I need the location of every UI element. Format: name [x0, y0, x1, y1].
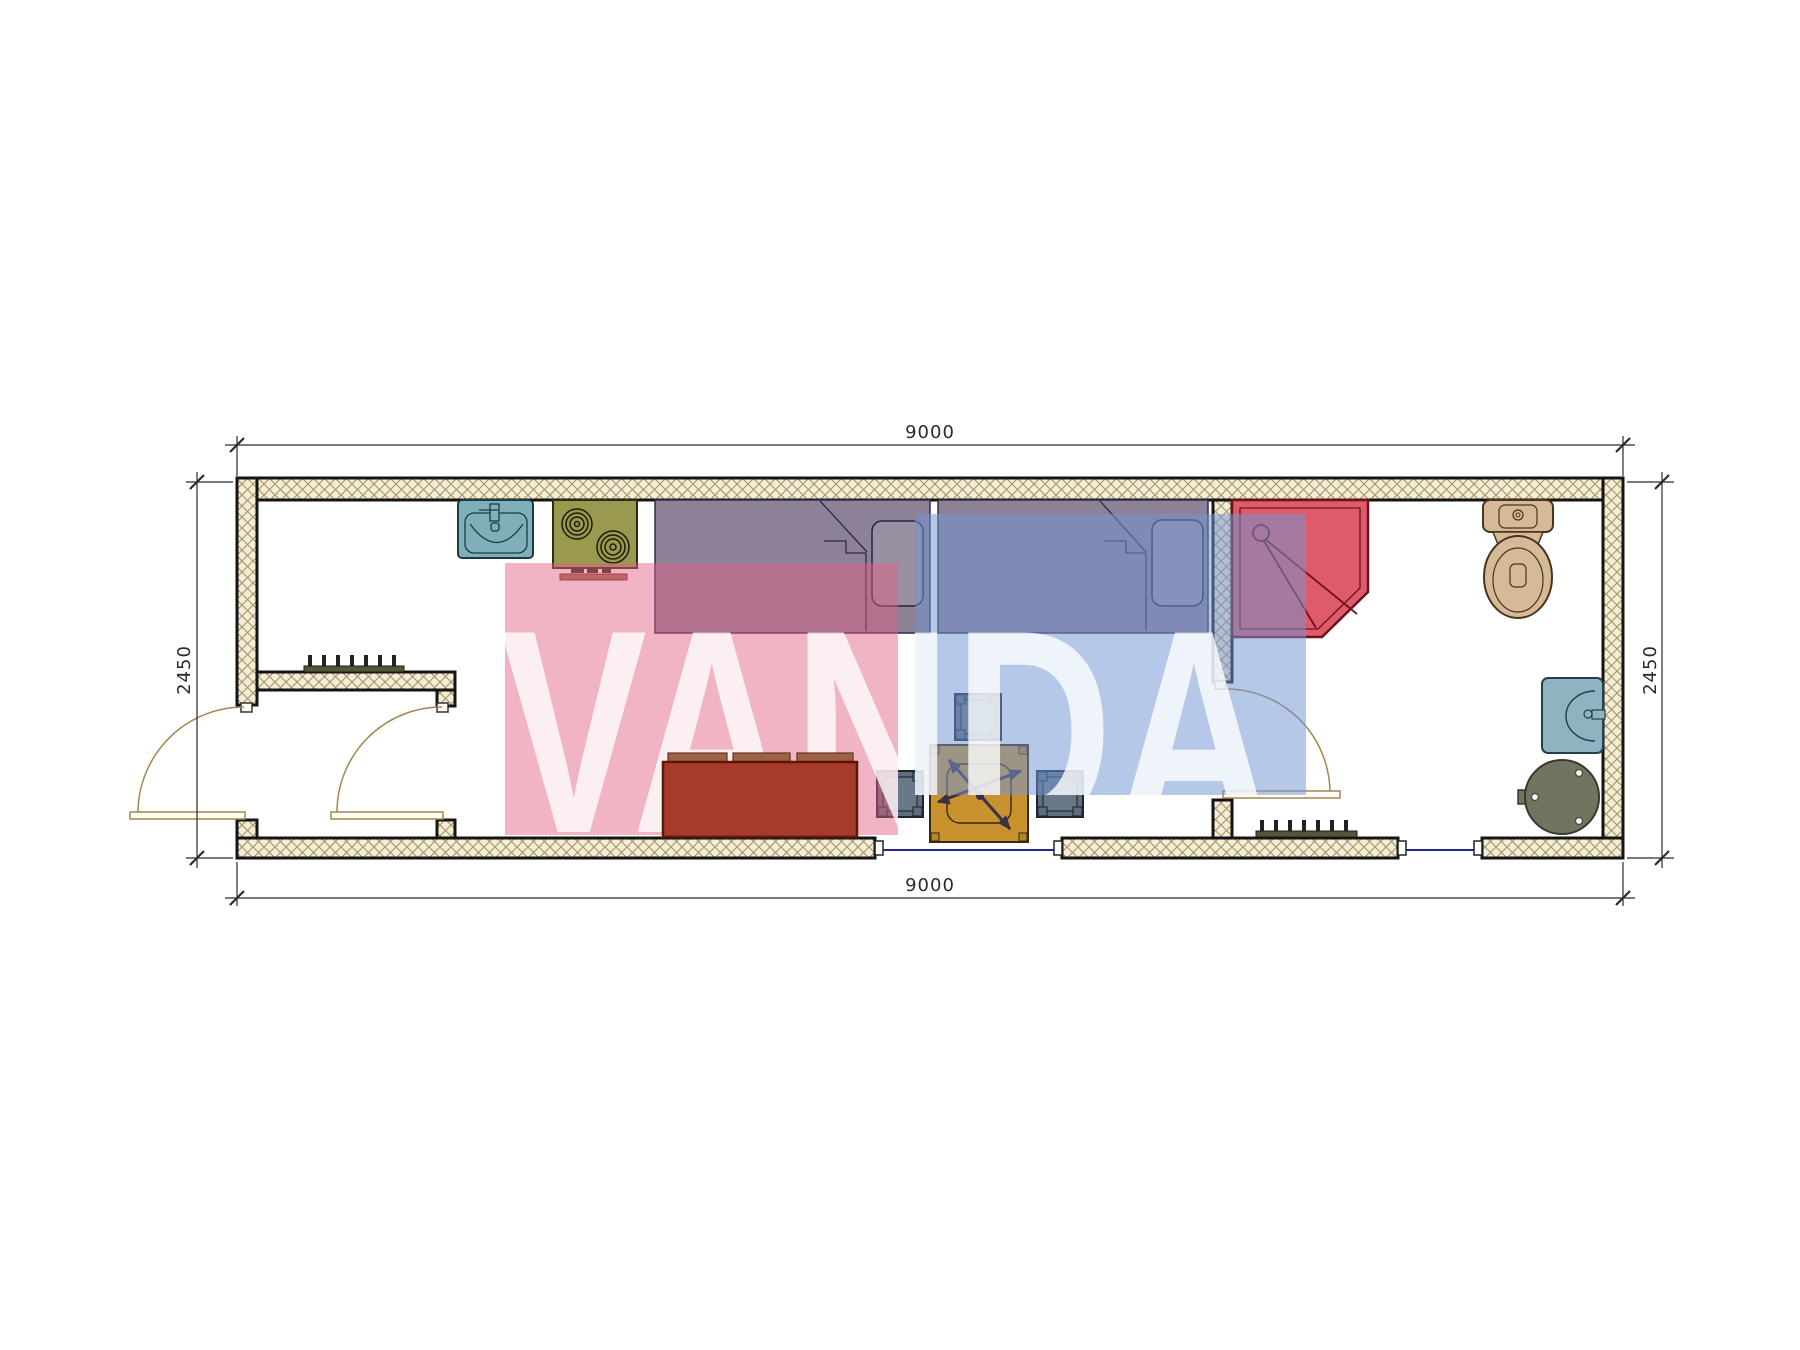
sofa-seat [663, 762, 857, 837]
sofa-layer [0, 0, 1800, 1350]
sofa [663, 753, 857, 837]
sofa-back-cushions [668, 753, 853, 762]
floor-plan-page: 9000 9000 2450 2450 VANDA VANDA [0, 0, 1800, 1350]
